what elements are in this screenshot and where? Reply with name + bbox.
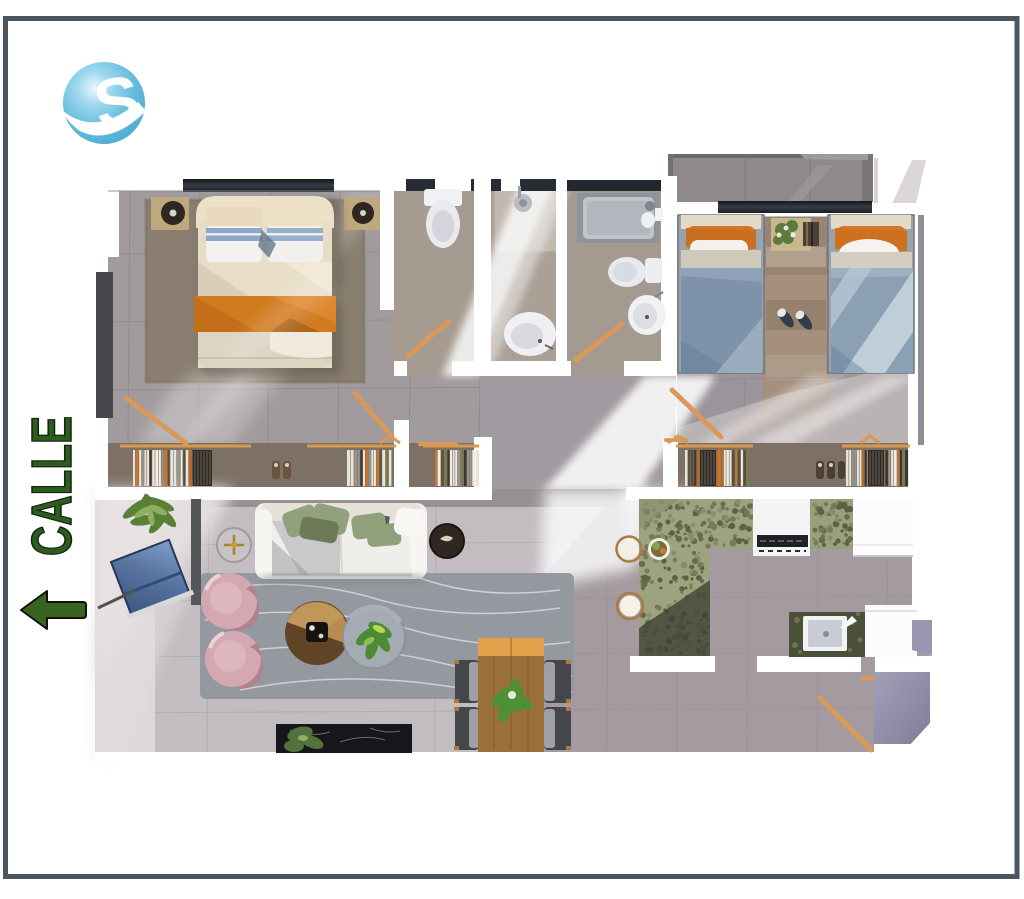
svg-text:CALLE: CALLE (20, 416, 84, 556)
